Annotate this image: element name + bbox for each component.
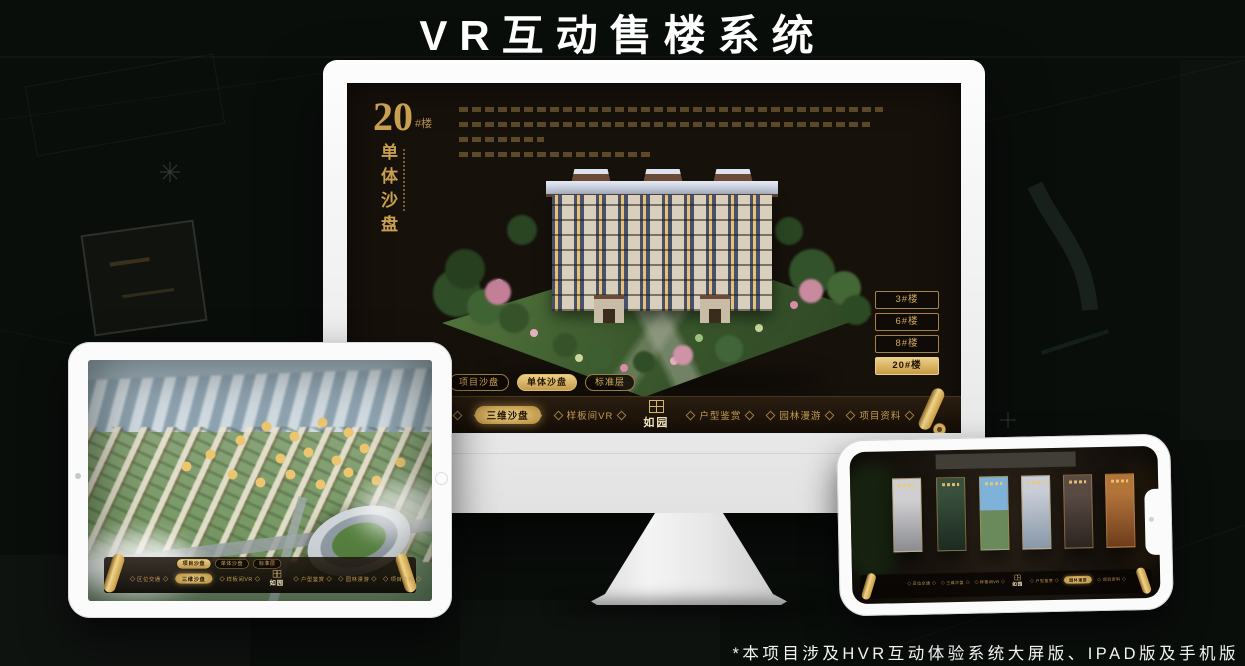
poster-footnote: *本项目涉及HVR互动体验系统大屏版、IPAD版及手机版 <box>732 640 1239 664</box>
nav-item[interactable]: 项目资料 <box>384 574 421 584</box>
gallery-panel[interactable] <box>892 478 923 553</box>
scroll-icon <box>861 572 877 600</box>
phone-mini-ui: 区位交通三维沙盘样板间VR 如园 户型鉴赏园林漫游项目资料 <box>882 572 1151 590</box>
vertical-caption-dashes <box>403 149 405 211</box>
phone-bottom-nav: 区位交通三维沙盘样板间VR 如园 户型鉴赏园林漫游项目资料 <box>882 572 1151 590</box>
floor-button[interactable]: 3#楼 <box>875 291 939 309</box>
tree <box>587 343 613 369</box>
gallery-panel[interactable] <box>979 476 1010 551</box>
nav-item[interactable]: 区位交通 <box>908 579 936 587</box>
flowering-tree <box>799 279 823 303</box>
nav-item[interactable]: 园林漫游 <box>767 406 833 424</box>
logo-text: 如园 <box>643 414 669 430</box>
entrance-porch <box>594 295 624 323</box>
camera-icon <box>75 473 81 479</box>
nav-item[interactable]: 三维沙盘 <box>941 578 969 586</box>
tablet-screen: 项目沙盘单体沙盘标准层 区位交通三维沙盘样板间VR 如园 户型鉴 <box>88 360 432 601</box>
flowering-tree <box>485 279 511 305</box>
residential-building <box>552 169 772 329</box>
tab[interactable]: 单体沙盘 <box>215 559 249 569</box>
nav-item[interactable]: 三维沙盘 <box>475 406 541 424</box>
nav-list-right: 户型鉴赏园林漫游项目资料 <box>1030 575 1125 585</box>
home-button[interactable] <box>435 472 448 485</box>
tablet-tab-row: 项目沙盘单体沙盘标准层 <box>177 559 421 569</box>
nav-item[interactable]: 三维沙盘 <box>175 574 212 584</box>
nav-item[interactable]: 户型鉴赏 <box>1030 576 1058 584</box>
garden-flowers <box>437 161 441 165</box>
tree <box>775 217 803 245</box>
phone-notch <box>1144 489 1160 555</box>
scroll-icon <box>911 387 951 433</box>
tablet-mini-ui: 项目沙盘单体沙盘标准层 区位交通三维沙盘样板间VR 如园 户型鉴 <box>130 559 421 587</box>
building-model-3d[interactable] <box>437 161 877 405</box>
nav-list-right: 户型鉴赏园林漫游项目资料 <box>687 406 913 424</box>
tablet-device: 项目沙盘单体沙盘标准层 区位交通三维沙盘样板间VR 如园 户型鉴 <box>68 342 452 618</box>
nav-item[interactable]: 户型鉴赏 <box>687 406 753 424</box>
block-number: 20 <box>373 97 413 137</box>
tab[interactable]: 单体沙盘 <box>517 374 577 391</box>
tab[interactable]: 标准层 <box>585 374 635 391</box>
intro-paragraph <box>459 107 883 167</box>
phone-frame: 区位交通三维沙盘样板间VR 如园 户型鉴赏园林漫游项目资料 <box>836 434 1174 617</box>
monitor-shadow <box>553 600 823 616</box>
block-number-suffix: #楼 <box>415 115 432 131</box>
nav-item[interactable]: 项目资料 <box>1098 575 1126 583</box>
tree <box>715 335 743 363</box>
poster-title: VR互动售楼系统 <box>0 2 1245 63</box>
floor-button[interactable]: 20#楼 <box>875 357 939 375</box>
entrance-porch <box>700 295 730 323</box>
tab[interactable]: 项目沙盘 <box>177 559 211 569</box>
seal-icon <box>649 400 664 413</box>
phone-device: 区位交通三维沙盘样板间VR 如园 户型鉴赏园林漫游项目资料 <box>836 434 1174 617</box>
floor-selector: 3#楼6#楼8#楼20#楼 <box>875 291 939 375</box>
nav-list-left: 区位交通三维沙盘样板间VR <box>908 578 1005 588</box>
gallery-panel[interactable] <box>1021 475 1052 550</box>
nav-item[interactable]: 区位交通 <box>130 574 167 584</box>
tree <box>841 295 871 325</box>
tab[interactable]: 标准层 <box>253 559 281 569</box>
floor-button[interactable]: 8#楼 <box>875 335 939 353</box>
tree <box>499 303 529 333</box>
tree <box>553 333 577 357</box>
gallery-panel[interactable] <box>1105 473 1136 548</box>
gate-beam <box>936 452 1076 470</box>
tablet-frame: 项目沙盘单体沙盘标准层 区位交通三维沙盘样板间VR 如园 户型鉴 <box>68 342 452 618</box>
nav-item[interactable]: 样板间VR <box>975 578 1005 586</box>
nav-list-left: 区位交通三维沙盘样板间VR <box>130 574 259 584</box>
nav-item[interactable]: 园林漫游 <box>1064 576 1092 584</box>
logo-text: 如园 <box>270 578 285 587</box>
tree <box>633 351 655 373</box>
section-title-vertical: 单体沙盘 <box>375 143 400 239</box>
nav-item[interactable]: 样板间VR <box>220 574 260 584</box>
gallery-panel[interactable] <box>1063 474 1094 549</box>
tab[interactable]: 项目沙盘 <box>449 374 509 391</box>
tablet-bottom-bar: 项目沙盘单体沙盘标准层 区位交通三维沙盘样板间VR 如园 户型鉴 <box>104 557 416 593</box>
poster-page: VR互动售楼系统 20 #楼 单体沙盘 <box>0 0 1245 666</box>
brand-logo: 如园 <box>270 570 285 587</box>
brand-logo: 如园 <box>643 400 669 430</box>
floor-button[interactable]: 6#楼 <box>875 313 939 331</box>
phone-bottom-bar: 区位交通三维沙盘样板间VR 如园 户型鉴赏园林漫游项目资料 <box>860 569 1152 599</box>
nav-item[interactable]: 园林漫游 <box>339 574 376 584</box>
brand-logo: 如园 <box>1012 575 1023 588</box>
nav-item[interactable]: 项目资料 <box>847 406 913 424</box>
seal-icon <box>1014 575 1020 581</box>
nav-list-right: 户型鉴赏园林漫游项目资料 <box>294 574 421 584</box>
seal-icon <box>273 570 281 577</box>
flowering-tree <box>673 345 693 365</box>
logo-text: 如园 <box>1012 581 1023 588</box>
gallery-panel[interactable] <box>936 477 967 552</box>
nav-item[interactable]: 样板间VR <box>555 406 626 424</box>
nav-item[interactable]: 户型鉴赏 <box>294 574 331 584</box>
tablet-bottom-nav: 区位交通三维沙盘样板间VR 如园 户型鉴赏园林漫游项目资料 <box>130 570 421 587</box>
monitor-tab-row: 项目沙盘单体沙盘标准层 <box>449 374 635 391</box>
camera-icon <box>1149 517 1154 522</box>
tree <box>445 249 485 289</box>
phone-screen: 区位交通三维沙盘样板间VR 如园 户型鉴赏园林漫游项目资料 <box>849 446 1160 604</box>
building-facade-windows <box>552 195 772 311</box>
scroll-icon <box>102 552 126 594</box>
tree <box>507 215 537 245</box>
